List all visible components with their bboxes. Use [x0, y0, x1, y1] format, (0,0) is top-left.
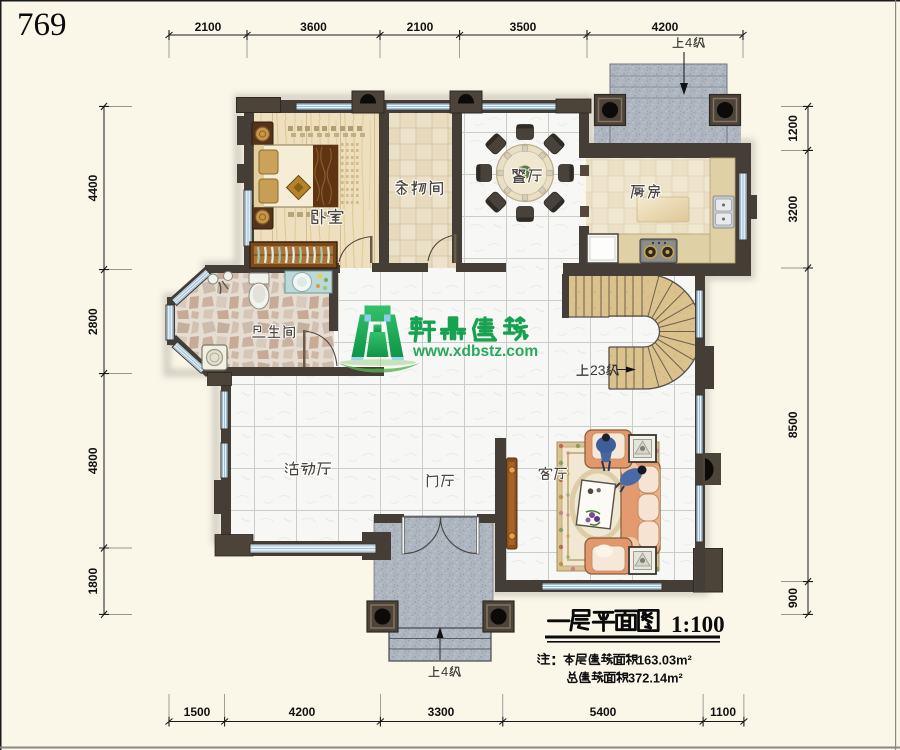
svg-text:4200: 4200	[289, 705, 316, 719]
svg-text:4: 4	[441, 664, 448, 679]
svg-text:3500: 3500	[510, 20, 537, 34]
svg-text:1500: 1500	[184, 705, 211, 719]
svg-text:1800: 1800	[86, 568, 100, 595]
svg-text:2800: 2800	[86, 308, 100, 335]
svg-text:769: 769	[17, 7, 67, 43]
svg-text:3600: 3600	[300, 20, 327, 34]
svg-text:1200: 1200	[786, 115, 800, 142]
svg-text:8500: 8500	[786, 411, 800, 438]
svg-text:163.03m²: 163.03m²	[637, 653, 692, 668]
svg-text:1100: 1100	[710, 705, 736, 719]
svg-text:1:100: 1:100	[671, 612, 725, 637]
svg-text:900: 900	[786, 588, 800, 608]
svg-text:4400: 4400	[86, 174, 100, 201]
svg-text:3200: 3200	[786, 196, 800, 223]
svg-text:4800: 4800	[86, 447, 100, 474]
svg-text:4: 4	[685, 35, 692, 50]
svg-text:2100: 2100	[195, 20, 222, 34]
svg-text:5400: 5400	[590, 705, 617, 719]
svg-text:4200: 4200	[652, 20, 679, 34]
svg-text:23: 23	[590, 362, 606, 378]
svg-text:372.14m²: 372.14m²	[628, 671, 683, 686]
svg-text:3300: 3300	[428, 705, 455, 719]
svg-text:2100: 2100	[407, 20, 434, 34]
svg-text:www.xdbstz.com: www.xdbstz.com	[412, 343, 538, 360]
